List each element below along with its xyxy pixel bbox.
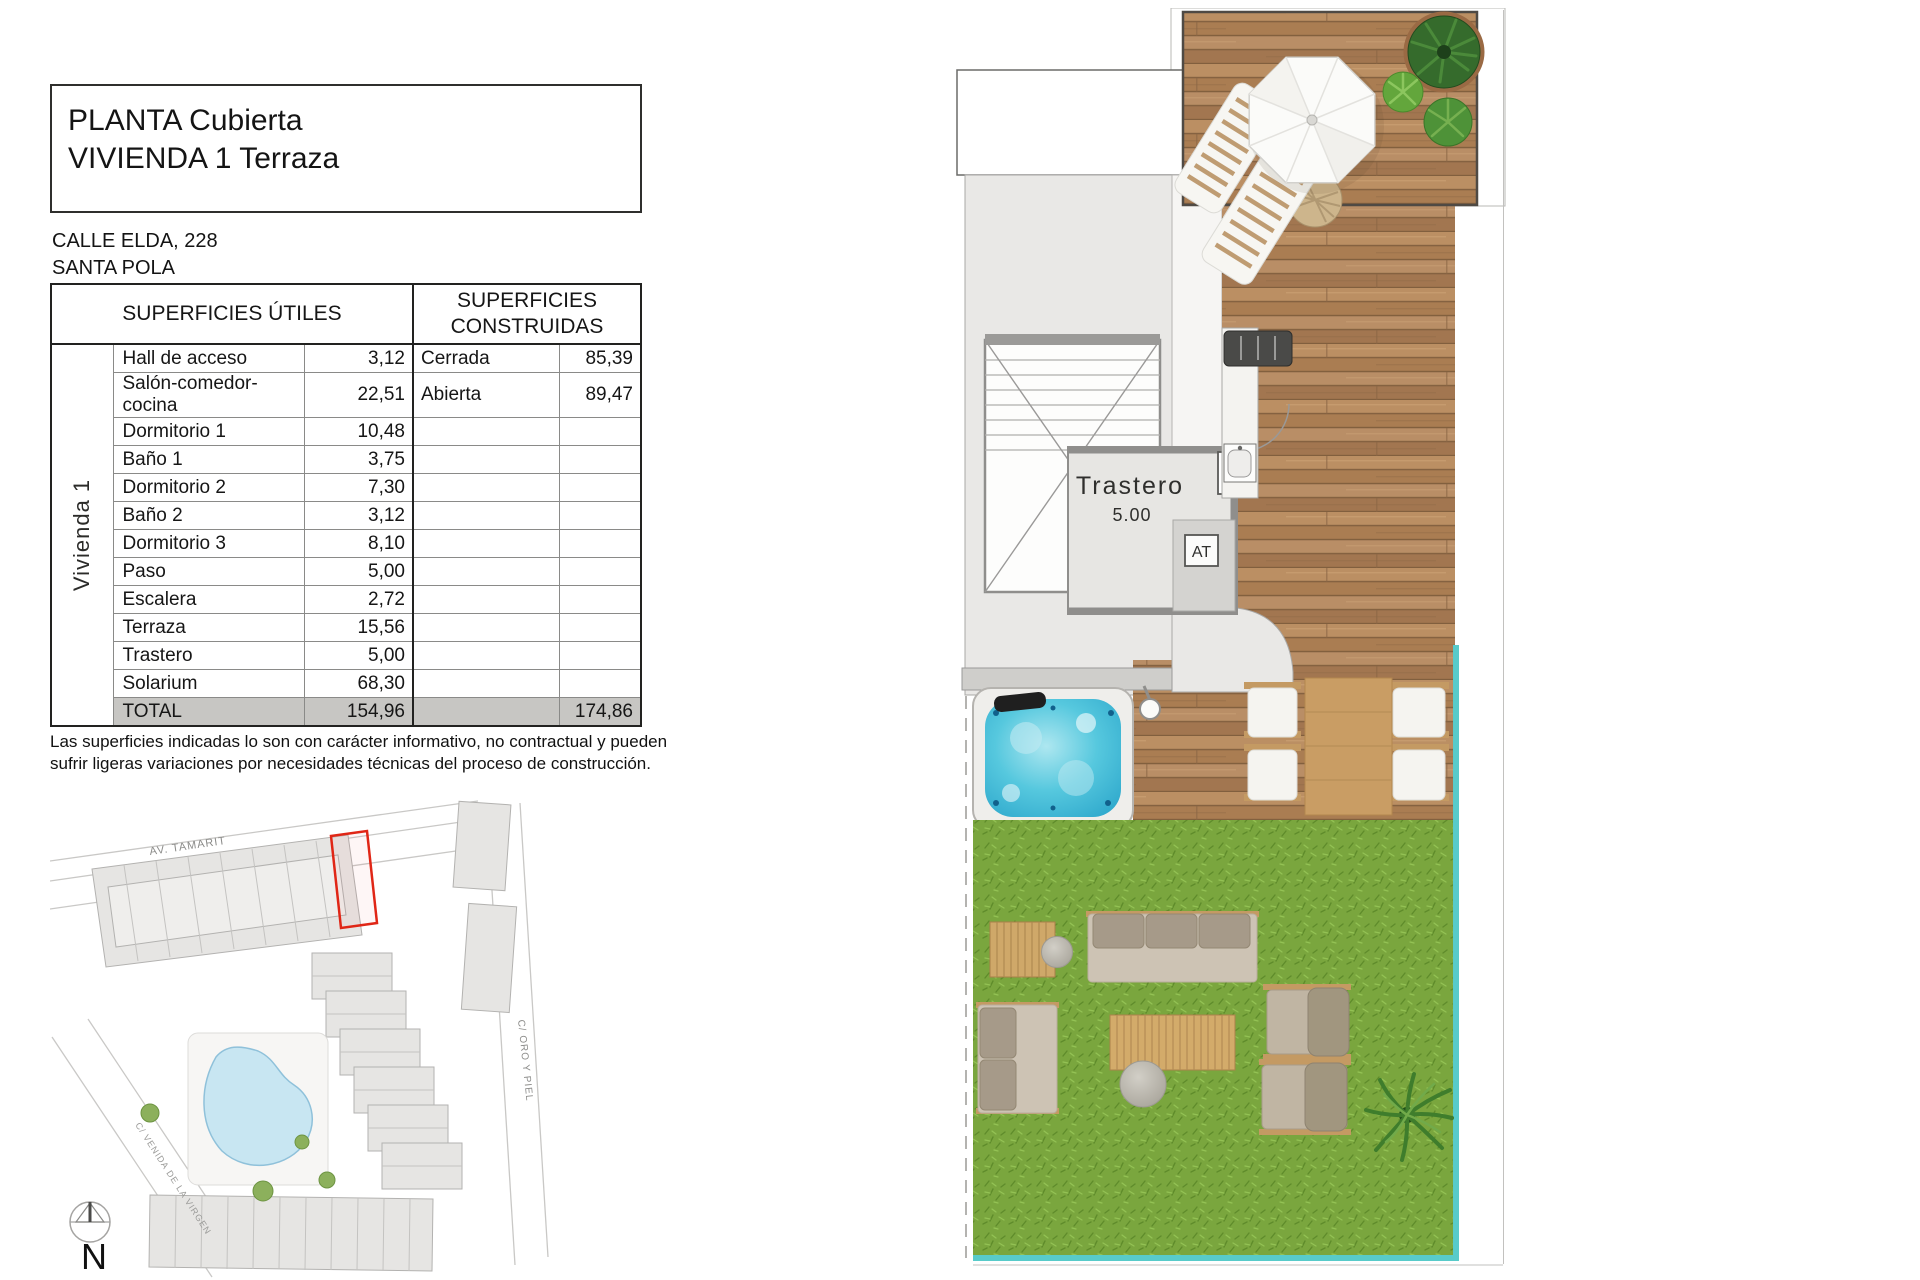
table-row: Solarium 68,30 [51, 670, 641, 698]
jacuzzi [973, 688, 1133, 828]
room-name: Baño 2 [113, 502, 304, 530]
construida-label [413, 586, 559, 614]
surfaces-table: SUPERFICIES ÚTILES SUPERFICIES CONSTRUID… [50, 283, 642, 727]
table-row: Dormitorio 1 10,48 [51, 418, 641, 446]
table-row: Escalera 2,72 [51, 586, 641, 614]
construida-value [559, 474, 641, 502]
table-row: Dormitorio 3 8,10 [51, 530, 641, 558]
construida-label: Cerrada [413, 344, 559, 373]
room-name: Solarium [113, 670, 304, 698]
at-box: AT [1185, 535, 1218, 566]
construida-label [413, 670, 559, 698]
room-name: Paso [113, 558, 304, 586]
room-name: Salón-comedor-cocina [113, 373, 304, 418]
construida-label [413, 502, 559, 530]
room-value: 15,56 [304, 614, 413, 642]
site-pool [188, 1033, 328, 1185]
parapet-wall [962, 668, 1172, 690]
table-total-row: TOTAL 154,96 174,86 [51, 698, 641, 727]
dining-chair [1248, 750, 1297, 800]
table-row: Baño 1 3,75 [51, 446, 641, 474]
sofa-two-seat [976, 1002, 1059, 1114]
site-plan: AV. TAMARIT C/ ORO Y PIEL C/ VENIDA DE L… [50, 795, 625, 1280]
room-value: 3,12 [304, 344, 413, 373]
room-name: Trastero [113, 642, 304, 670]
construida-value [559, 418, 641, 446]
address-street: CALLE ELDA, 228 [52, 228, 218, 255]
room-name: Escalera [113, 586, 304, 614]
group-label: Vivienda 1 [69, 479, 95, 591]
construida-value [559, 558, 641, 586]
potted-plant [1424, 98, 1472, 146]
north-label: N [81, 1236, 107, 1277]
construida-value [559, 530, 641, 558]
plan-title-line1: PLANTA Cubierta [68, 102, 640, 140]
construida-value [559, 446, 641, 474]
room-name: Baño 1 [113, 446, 304, 474]
table-row: Paso 5,00 [51, 558, 641, 586]
dining-chair [1248, 688, 1297, 737]
construida-value [559, 670, 641, 698]
address-city: SANTA POLA [52, 255, 218, 282]
armchair [1259, 1059, 1351, 1135]
dining-chair [1393, 688, 1445, 737]
table-row: Salón-comedor-cocina 22,51 Abierta 89,47 [51, 373, 641, 418]
parasol-umbrella [1248, 57, 1384, 194]
room-value: 8,10 [304, 530, 413, 558]
disclaimer-text: Las superficies indicadas lo son con car… [50, 731, 674, 775]
room-name: Terraza [113, 614, 304, 642]
room-name: Dormitorio 2 [113, 474, 304, 502]
construida-label [413, 530, 559, 558]
trastero-label: Trastero [1076, 472, 1184, 500]
group-label-cell: Vivienda 1 [51, 344, 113, 726]
coffee-table [1110, 1015, 1235, 1070]
total-label: TOTAL [113, 698, 304, 727]
title-box: PLANTA Cubierta VIVIENDA 1 Terraza [50, 84, 642, 213]
construida-value [559, 586, 641, 614]
table-row: Vivienda 1 Hall de acceso 3,12 Cerrada 8… [51, 344, 641, 373]
total-construida-spacer [413, 698, 559, 727]
room-value: 3,12 [304, 502, 413, 530]
construida-value: 85,39 [559, 344, 641, 373]
potted-plant [1383, 72, 1423, 112]
dining-chair [1393, 750, 1445, 800]
construida-label: Abierta [413, 373, 559, 418]
plan-sheet: PLANTA Cubierta VIVIENDA 1 Terraza CALLE… [0, 0, 1920, 1280]
construida-label [413, 446, 559, 474]
address-block: CALLE ELDA, 228 SANTA POLA [52, 228, 218, 282]
construida-label [413, 642, 559, 670]
room-value: 68,30 [304, 670, 413, 698]
teal-border-bottom [973, 1255, 1459, 1261]
dining-set [1244, 678, 1449, 815]
table-row: Terraza 15,56 [51, 614, 641, 642]
table-header-row: SUPERFICIES ÚTILES SUPERFICIES CONSTRUID… [51, 284, 641, 344]
stone-coffee-table [1120, 1061, 1166, 1107]
bbq-grill [1224, 331, 1292, 366]
construida-label [413, 558, 559, 586]
room-value: 5,00 [304, 642, 413, 670]
trastero-area: 5.00 [1112, 505, 1151, 525]
room-value: 22,51 [304, 373, 413, 418]
construida-value [559, 502, 641, 530]
table-row: Dormitorio 2 7,30 [51, 474, 641, 502]
header-superficies-construidas: SUPERFICIES CONSTRUIDAS [413, 284, 641, 344]
room-name: Dormitorio 1 [113, 418, 304, 446]
room-value: 5,00 [304, 558, 413, 586]
header-superficies-utiles: SUPERFICIES ÚTILES [51, 284, 413, 344]
room-name: Hall de acceso [113, 344, 304, 373]
roof-block [957, 70, 1195, 175]
street-label-oro-y-piel: C/ ORO Y PIEL [515, 1019, 535, 1102]
stone-side-table [1042, 937, 1073, 968]
armchair [1263, 984, 1351, 1060]
north-arrow: N [70, 1202, 110, 1277]
plan-title-line2: VIVIENDA 1 Terraza [68, 140, 640, 178]
room-value: 7,30 [304, 474, 413, 502]
table-row: Trastero 5,00 [51, 642, 641, 670]
construida-value [559, 614, 641, 642]
room-value: 10,48 [304, 418, 413, 446]
room-name: Dormitorio 3 [113, 530, 304, 558]
construida-label [413, 614, 559, 642]
sink [1224, 444, 1256, 482]
construida-value [559, 642, 641, 670]
total-value-utiles: 154,96 [304, 698, 413, 727]
floor-plan: Trastero 5.00 AT [956, 8, 1516, 1274]
room-value: 3,75 [304, 446, 413, 474]
total-value-construidas: 174,86 [559, 698, 641, 727]
construida-label [413, 418, 559, 446]
table-row: Baño 2 3,12 [51, 502, 641, 530]
teal-border-right [1453, 645, 1459, 1261]
at-label: AT [1192, 544, 1211, 561]
sofa-three-seat [1086, 911, 1259, 982]
construida-value: 89,47 [559, 373, 641, 418]
room-value: 2,72 [304, 586, 413, 614]
construida-label [413, 474, 559, 502]
